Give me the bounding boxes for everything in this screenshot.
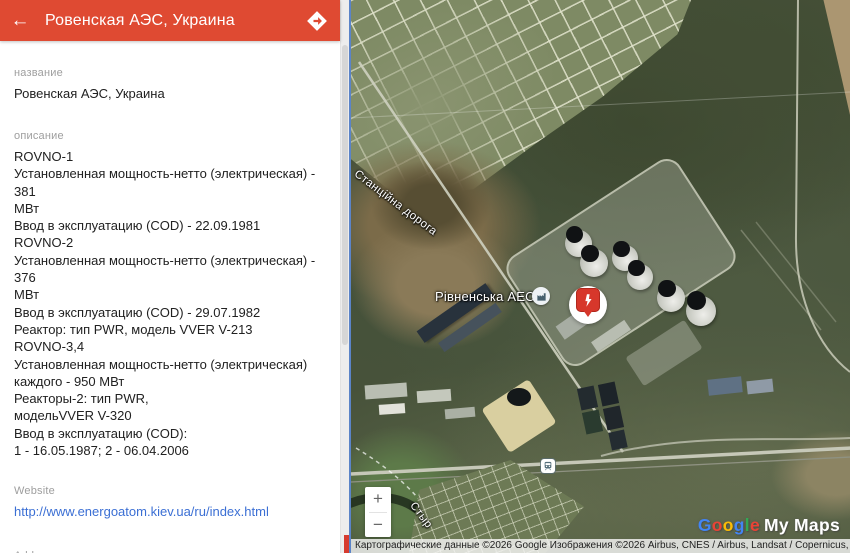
google-letter: o: [712, 515, 723, 535]
field-name: название Ровенская АЭС, Украина: [14, 67, 340, 101]
poi-label: Рівненська АЕС: [435, 289, 535, 304]
field-description-value: ROVNO-1 Установленная мощность-нетто (эл…: [14, 148, 340, 459]
cooling-tower: [686, 296, 716, 326]
google-letter: G: [698, 515, 712, 535]
description-line: МВт: [14, 200, 340, 217]
zoom-out-button[interactable]: −: [365, 513, 391, 538]
google-letter: o: [723, 515, 734, 535]
description-line: Установленная мощность-нетто (электричес…: [14, 252, 340, 287]
description-line: ROVNO-2: [14, 234, 340, 251]
google-letter: g: [734, 515, 745, 535]
map-attribution: Картографические данные ©2026 Google Изо…: [351, 539, 850, 553]
map-left-edge: [349, 0, 351, 553]
directions-button[interactable]: [294, 10, 340, 32]
industrial-building: [417, 389, 452, 403]
dark-pond: [507, 388, 531, 406]
cooling-tower: [580, 249, 608, 277]
lightning-icon: [581, 293, 596, 308]
field-website-label: Website: [14, 485, 340, 497]
description-line: каждого - 950 МВт: [14, 373, 340, 390]
power-plant-poi-icon[interactable]: [532, 287, 550, 305]
description-line: Ввод в эксплуатацию (COD) - 29.07.1982: [14, 304, 340, 321]
description-line: Ввод в эксплуатацию (COD) - 22.09.1981: [14, 217, 340, 234]
cooling-tower: [627, 264, 653, 290]
description-line: Установленная мощность-нетто (электричес…: [14, 356, 340, 373]
google-my-maps-logo: GoogleMy Maps: [698, 515, 840, 536]
industrial-building: [746, 379, 773, 395]
website-link[interactable]: http://www.energoatom.kiev.ua/ru/index.h…: [14, 504, 269, 519]
description-line: ROVNO-1: [14, 148, 340, 165]
marker-tail: [583, 310, 593, 317]
description-line: Установленная мощность-нетто (электричес…: [14, 165, 340, 200]
map-canvas[interactable]: Станційна дорога Стыр Рівненська АЕС: [351, 0, 850, 553]
description-line: ROVNO-3,4: [14, 338, 340, 355]
description-line: Реактор: тип PWR, модель VVER V-213: [14, 321, 340, 338]
industrial-building: [379, 403, 406, 415]
back-icon[interactable]: ←: [0, 10, 40, 32]
my-maps-wordmark: My Maps: [764, 515, 840, 535]
field-name-label: название: [14, 67, 340, 79]
google-letter: e: [750, 515, 760, 535]
zoom-in-button[interactable]: +: [365, 487, 391, 512]
panel-header: ← Ровенская АЭС, Украина: [0, 0, 340, 41]
settling-pond: [608, 430, 627, 451]
page-title: Ровенская АЭС, Украина: [40, 12, 294, 30]
description-line: Реакторы-2: тип PWR,: [14, 390, 340, 407]
info-panel: ← Ровенская АЭС, Украина название Ровенс…: [0, 0, 340, 553]
panel-scrollbar-thumb[interactable]: [342, 45, 348, 345]
description-line: МВт: [14, 286, 340, 303]
field-website: Website http://www.energoatom.kiev.ua/ru…: [14, 485, 340, 521]
industrial-building: [365, 383, 408, 400]
zoom-control: + −: [365, 487, 391, 537]
description-line: модельVVER V-320: [14, 407, 340, 424]
description-line: Ввод в эксплуатацию (COD):: [14, 425, 340, 442]
directions-icon: [306, 10, 328, 32]
field-description-label: описание: [14, 130, 340, 142]
description-line: 1 - 16.05.1987; 2 - 06.04.2006: [14, 442, 340, 459]
field-description: описание ROVNO-1 Установленная мощность-…: [14, 130, 340, 459]
app-window: ← Ровенская АЭС, Украина название Ровенс…: [0, 0, 850, 553]
panel-body: название Ровенская АЭС, Украина описание…: [0, 41, 340, 553]
train-station-icon[interactable]: [541, 459, 555, 473]
cooling-tower: [657, 284, 685, 312]
field-name-value: Ровенская АЭС, Украина: [14, 86, 340, 101]
selected-marker[interactable]: [576, 288, 600, 312]
